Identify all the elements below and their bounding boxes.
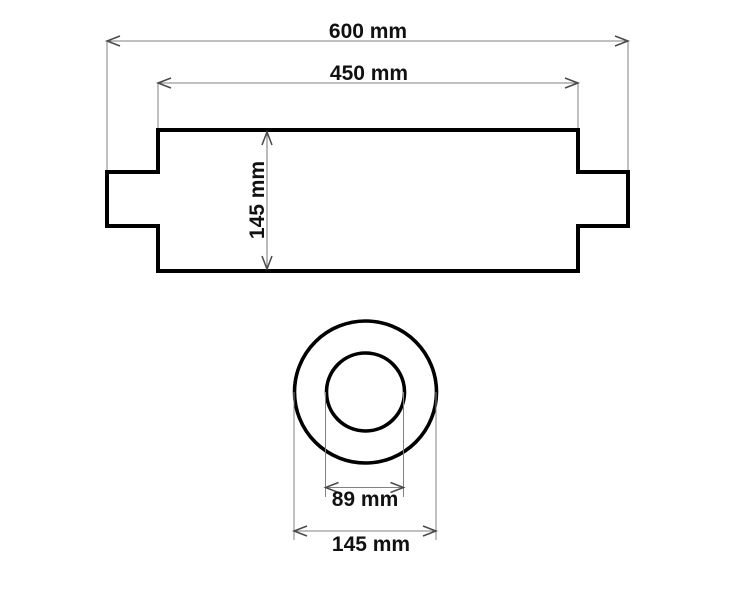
inner-pipe-circle [327,353,405,431]
drawing-canvas: 600 mm 450 mm 145 mm [0,0,731,600]
dimension-label-inner-diameter: 89 mm [332,488,399,511]
dimension-label-outer-diameter: 145 mm [332,533,410,556]
dim-outer-diameter: 145 mm [294,392,436,556]
shell-outer-circle [295,321,437,463]
dim-inner-diameter: 89 mm [326,392,404,511]
end-view: 89 mm 145 mm [294,321,437,556]
dimension-label-body-height: 145 mm [246,161,269,239]
dim-body-length: 450 mm [158,62,578,128]
dimension-label-body-length: 450 mm [330,62,408,85]
muffler-technical-drawing: 600 mm 450 mm 145 mm [0,0,731,600]
side-view: 600 mm 450 mm 145 mm [107,20,628,271]
dimension-label-overall-length: 600 mm [329,20,407,43]
muffler-body-outline [107,130,628,271]
